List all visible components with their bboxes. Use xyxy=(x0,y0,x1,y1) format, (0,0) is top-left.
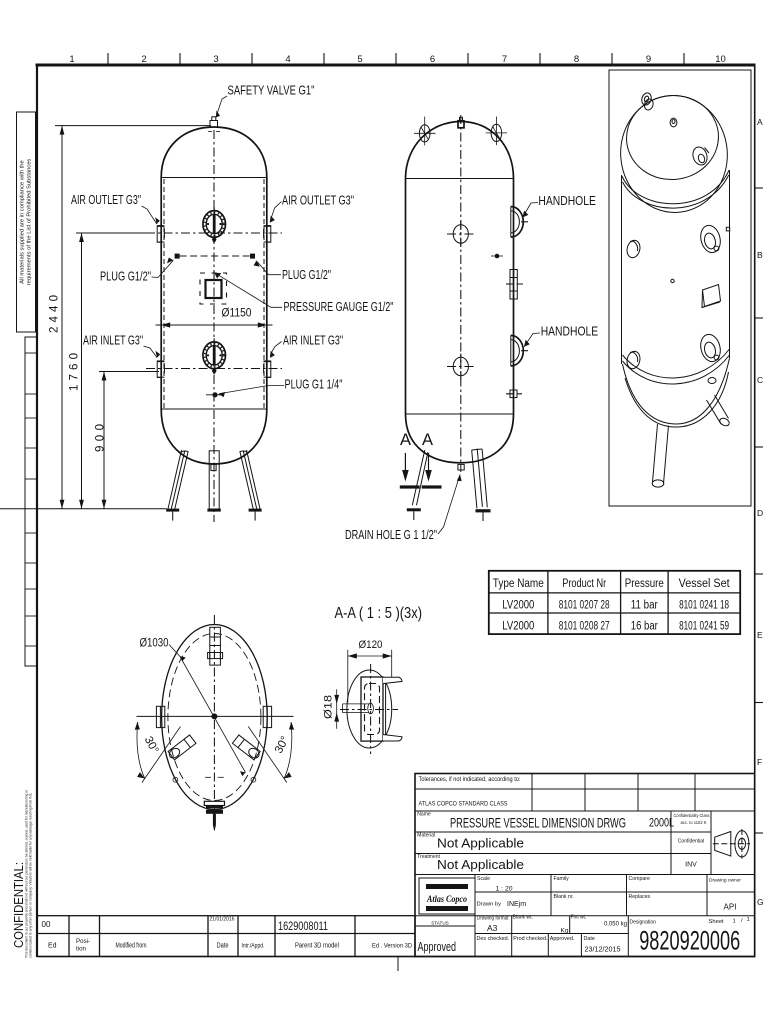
svg-text:tion: tion xyxy=(76,946,87,953)
svg-text:PLUG G1/2": PLUG G1/2" xyxy=(282,268,331,282)
svg-text:Not Applicable: Not Applicable xyxy=(437,857,524,872)
svg-text:8101 0207 28: 8101 0207 28 xyxy=(559,600,610,612)
svg-text:Ø1030: Ø1030 xyxy=(140,638,169,650)
svg-text:9820920006: 9820920006 xyxy=(639,926,740,956)
svg-text:STATUS: STATUS xyxy=(431,921,448,926)
svg-text:Confidential: Confidential xyxy=(678,839,704,845)
svg-text:0.050 kg: 0.050 kg xyxy=(604,922,627,928)
svg-text:Sheet: Sheet xyxy=(709,919,725,925)
svg-text:communicated to any other pers: communicated to any other person or comp… xyxy=(29,793,33,958)
svg-text:6: 6 xyxy=(430,54,435,65)
svg-text:AIR INLET G3": AIR INLET G3" xyxy=(83,334,143,348)
svg-text:Date: Date xyxy=(217,943,229,950)
svg-text:Modified from: Modified from xyxy=(116,943,147,950)
svg-text:C: C xyxy=(757,375,763,385)
svg-text:AIR OUTLET G3": AIR OUTLET G3" xyxy=(282,194,354,208)
svg-text:Ed: Ed xyxy=(48,943,57,950)
svg-text:7: 7 xyxy=(502,54,507,65)
svg-text:Ed . Version 3D: Ed . Version 3D xyxy=(372,943,412,950)
svg-text:1: 1 xyxy=(69,54,74,65)
svg-text:SAFETY VALVE G1": SAFETY VALVE G1" xyxy=(228,84,315,98)
svg-text:LV2000: LV2000 xyxy=(502,621,534,633)
svg-text:9: 9 xyxy=(646,54,651,65)
svg-text:AIR OUTLET G3": AIR OUTLET G3" xyxy=(71,193,141,207)
svg-text:A: A xyxy=(400,431,411,449)
svg-text:Fini wt.: Fini wt. xyxy=(571,915,587,921)
svg-text:Drawn by: Drawn by xyxy=(477,902,502,908)
svg-text:API: API xyxy=(724,903,737,912)
svg-text:HANDHOLE: HANDHOLE xyxy=(538,194,596,208)
svg-text:3: 3 xyxy=(213,54,218,65)
svg-text:900: 900 xyxy=(95,424,107,452)
svg-text:Atlas Copco: Atlas Copco xyxy=(426,894,467,904)
svg-text:2000L: 2000L xyxy=(649,816,674,830)
svg-text:8101 0208 27: 8101 0208 27 xyxy=(559,621,610,633)
svg-text:D: D xyxy=(757,508,763,518)
svg-text:2: 2 xyxy=(141,54,146,65)
svg-text:8: 8 xyxy=(574,54,579,65)
svg-text:PLUG G1 1/4": PLUG G1 1/4" xyxy=(285,378,343,392)
svg-text:Scale: Scale xyxy=(477,876,490,882)
svg-text:4: 4 xyxy=(285,54,290,65)
svg-text:Replaces: Replaces xyxy=(629,894,651,900)
svg-text:INV: INV xyxy=(685,862,697,869)
svg-text:Ø120: Ø120 xyxy=(359,639,383,651)
svg-text:1 : 20: 1 : 20 xyxy=(496,886,513,893)
svg-text:E: E xyxy=(757,630,763,640)
svg-text:Approved: Approved xyxy=(418,939,457,954)
svg-text:DRAIN HOLE G 1 1/2": DRAIN HOLE G 1 1/2" xyxy=(345,528,437,542)
svg-text:8101 0241 18: 8101 0241 18 xyxy=(679,600,729,612)
svg-text:21/01/2016: 21/01/2016 xyxy=(210,917,235,923)
svg-text:Prod checked.: Prod checked. xyxy=(513,936,547,942)
svg-text:10: 10 xyxy=(715,54,726,65)
svg-text:1629008011: 1629008011 xyxy=(278,921,328,933)
svg-text:Posi-: Posi- xyxy=(76,938,90,945)
svg-text:Approved.: Approved. xyxy=(550,936,575,942)
svg-text:All materials supplied are in: All materials supplied are in compliance… xyxy=(20,160,26,283)
svg-text:A-A ( 1 : 5 )(3x): A-A ( 1 : 5 )(3x) xyxy=(335,605,423,622)
svg-text:A3: A3 xyxy=(487,923,498,933)
svg-text:1: 1 xyxy=(747,917,750,923)
svg-text:11 bar: 11 bar xyxy=(631,600,658,612)
svg-text:23/12/2015: 23/12/2015 xyxy=(585,945,621,954)
svg-text:A: A xyxy=(422,431,433,449)
svg-text:AIR INLET G3": AIR INLET G3" xyxy=(283,334,343,348)
svg-text:Not Applicable: Not Applicable xyxy=(437,836,524,851)
svg-text:Pressure: Pressure xyxy=(625,578,664,590)
svg-text:Family: Family xyxy=(554,876,570,882)
svg-text:PRESSURE VESSEL DIMENSION DRWG: PRESSURE VESSEL DIMENSION DRWG xyxy=(450,815,626,831)
svg-text:PRESSURE GAUGE G1/2": PRESSURE GAUGE G1/2" xyxy=(284,300,394,314)
svg-text:Name: Name xyxy=(417,812,431,818)
svg-text:Ø1150: Ø1150 xyxy=(222,308,252,320)
svg-text:Des checked.: Des checked. xyxy=(477,936,510,942)
svg-text:Product Nr: Product Nr xyxy=(562,578,606,590)
svg-text:Material: Material xyxy=(417,833,435,839)
svg-text:requirements of the List of Pr: requirements of the List of Prohibited S… xyxy=(27,159,33,286)
svg-text:Compare: Compare xyxy=(629,876,650,882)
svg-text:Intr./Appd.: Intr./Appd. xyxy=(242,943,265,950)
svg-text:F: F xyxy=(757,757,762,767)
svg-text:Vessel Set: Vessel Set xyxy=(679,578,731,590)
svg-text:acc. to 1102 K: acc. to 1102 K xyxy=(681,820,707,825)
svg-text:G: G xyxy=(757,897,764,907)
svg-text:Date: Date xyxy=(584,936,595,942)
svg-text:Confidentiality Class: Confidentiality Class xyxy=(674,813,711,818)
svg-text:Type Name: Type Name xyxy=(493,578,544,590)
svg-text:Blank wt.: Blank wt. xyxy=(513,915,533,921)
svg-text:B: B xyxy=(757,250,763,260)
svg-text:8101 0241 59: 8101 0241 59 xyxy=(679,621,729,633)
svg-text:LV2000: LV2000 xyxy=(502,600,534,612)
svg-text:INEjm: INEjm xyxy=(507,901,526,908)
svg-text:16 bar: 16 bar xyxy=(631,621,658,633)
svg-text:Tolerances, if not indicated,: Tolerances, if not indicated, according … xyxy=(419,776,521,783)
svg-text:Ø18: Ø18 xyxy=(323,695,335,719)
svg-text:A: A xyxy=(757,117,763,127)
svg-text:Parent 3D model: Parent 3D model xyxy=(295,943,339,950)
svg-text:Drawing owner: Drawing owner xyxy=(709,878,741,884)
svg-text:5: 5 xyxy=(357,54,362,65)
svg-text:HANDHOLE: HANDHOLE xyxy=(541,325,599,339)
svg-text:PLUG G1/2": PLUG G1/2" xyxy=(100,270,151,284)
svg-text:Blank nr.: Blank nr. xyxy=(554,894,574,900)
svg-text:Kg: Kg xyxy=(561,928,569,935)
svg-text:00: 00 xyxy=(42,920,51,929)
svg-text:Drawing format: Drawing format xyxy=(477,916,509,922)
svg-text:1: 1 xyxy=(733,919,736,925)
svg-text:ATLAS COPCO STANDARD CLASS: ATLAS COPCO STANDARD CLASS xyxy=(419,801,508,808)
